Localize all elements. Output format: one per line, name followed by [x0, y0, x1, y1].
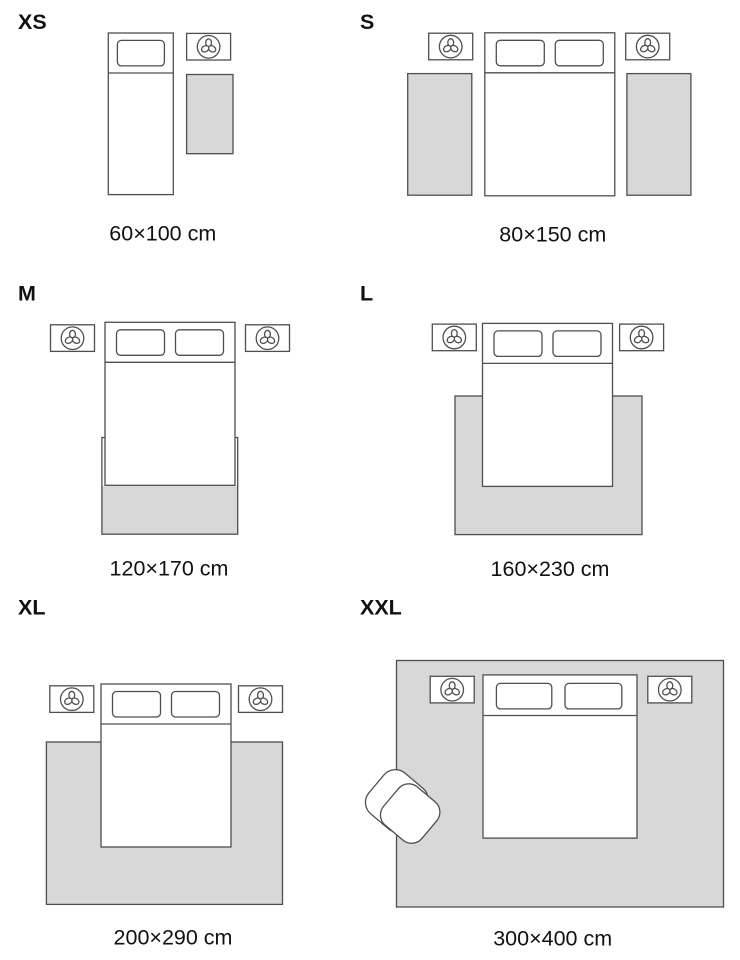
svg-text:160×230 cm: 160×230 cm	[491, 557, 610, 581]
svg-text:120×170 cm: 120×170 cm	[110, 557, 229, 581]
svg-text:200×290 cm: 200×290 cm	[114, 926, 233, 950]
svg-text:XS: XS	[18, 10, 47, 34]
svg-text:L: L	[360, 282, 373, 306]
svg-text:80×150 cm: 80×150 cm	[499, 223, 606, 247]
svg-text:60×100 cm: 60×100 cm	[109, 222, 216, 246]
svg-text:S: S	[360, 10, 374, 34]
svg-text:M: M	[18, 282, 36, 306]
svg-text:XXL: XXL	[360, 596, 402, 620]
svg-text:300×400 cm: 300×400 cm	[493, 927, 612, 951]
svg-text:XL: XL	[18, 596, 45, 620]
